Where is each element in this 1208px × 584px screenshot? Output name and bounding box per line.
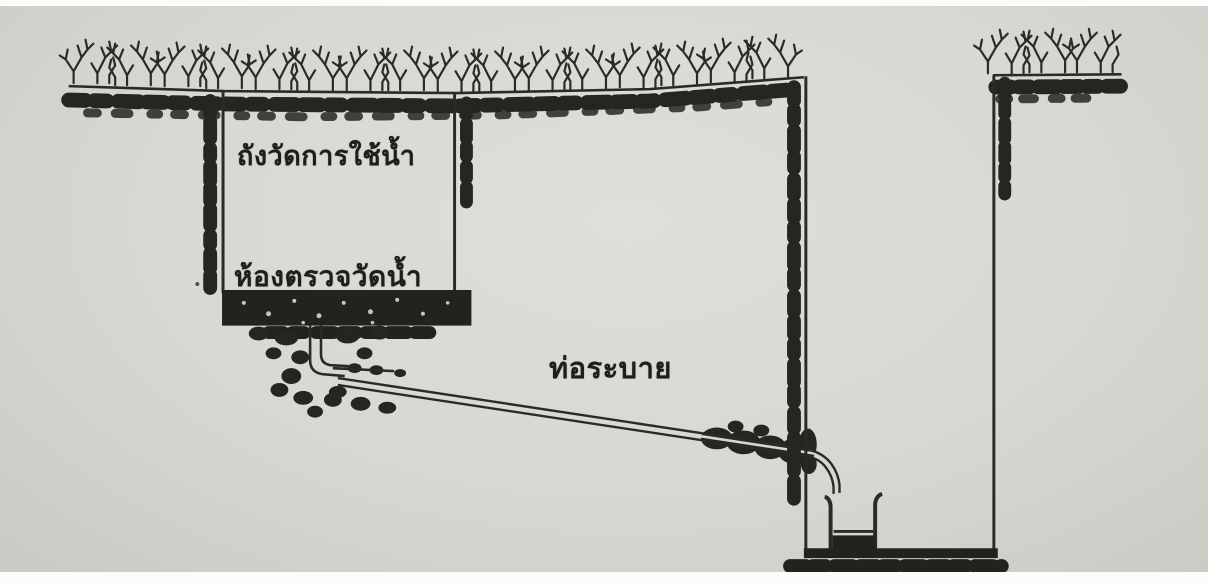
scanned-page: ถังวัดการใช้น้ำ ห้องตรวจวัดน้ำ ท่อระบาย (0, 0, 1208, 584)
diagram-canvas (0, 6, 1208, 572)
collection-bucket (825, 494, 882, 554)
label-drain-pipe: ท่อระบาย (549, 345, 672, 391)
ground-line (69, 74, 1122, 93)
photo-background: ถังวัดการใช้น้ำ ห้องตรวจวัดน้ำ ท่อระบาย (0, 6, 1208, 572)
deep-pit (790, 75, 1005, 566)
label-measuring-chamber: ห้องตรวจวัดน้ำ (234, 255, 422, 299)
vegetation-row (60, 29, 1121, 91)
pit-floor-slab (790, 548, 1002, 566)
label-measuring-tank: ถังวัดการใช้น้ำ (237, 134, 415, 177)
ink-speck (195, 282, 199, 286)
drain-pipe (338, 378, 840, 494)
diagram-photo: ถังวัดการใช้น้ำ ห้องตรวจวัดน้ำ ท่อระบาย (0, 6, 1208, 572)
outlet-elbow (249, 326, 406, 418)
